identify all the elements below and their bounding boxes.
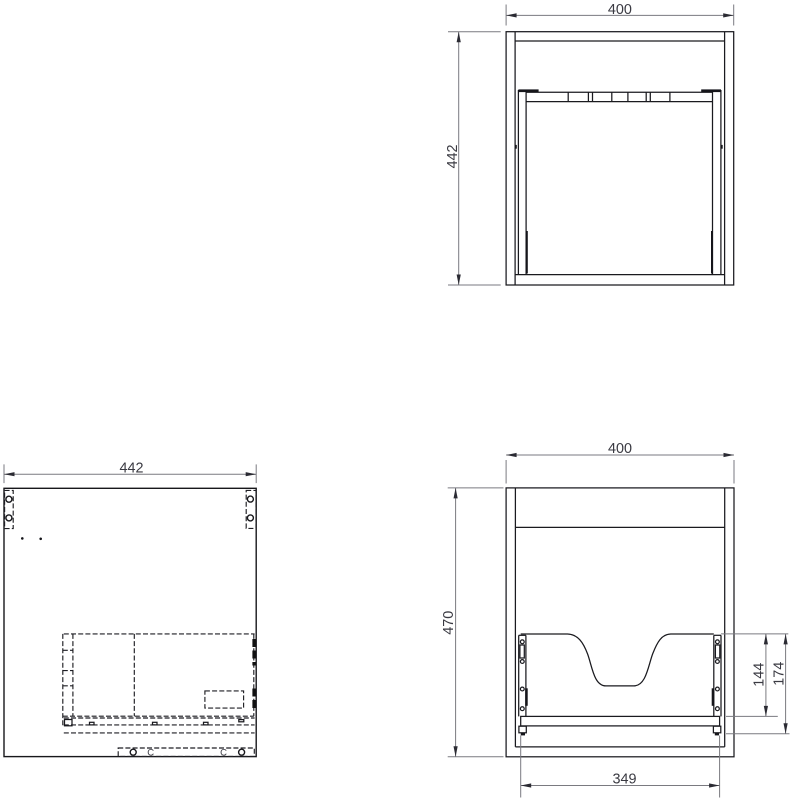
svg-text:144: 144 [751, 663, 767, 687]
svg-text:442: 442 [119, 461, 143, 477]
svg-text:442: 442 [445, 144, 461, 168]
svg-text:174: 174 [771, 662, 787, 686]
svg-text:400: 400 [608, 441, 632, 457]
svg-text:349: 349 [612, 771, 636, 787]
svg-text:400: 400 [608, 2, 632, 18]
svg-text:470: 470 [441, 611, 457, 635]
svg-text:C: C [220, 748, 227, 759]
svg-text:C: C [147, 748, 154, 759]
